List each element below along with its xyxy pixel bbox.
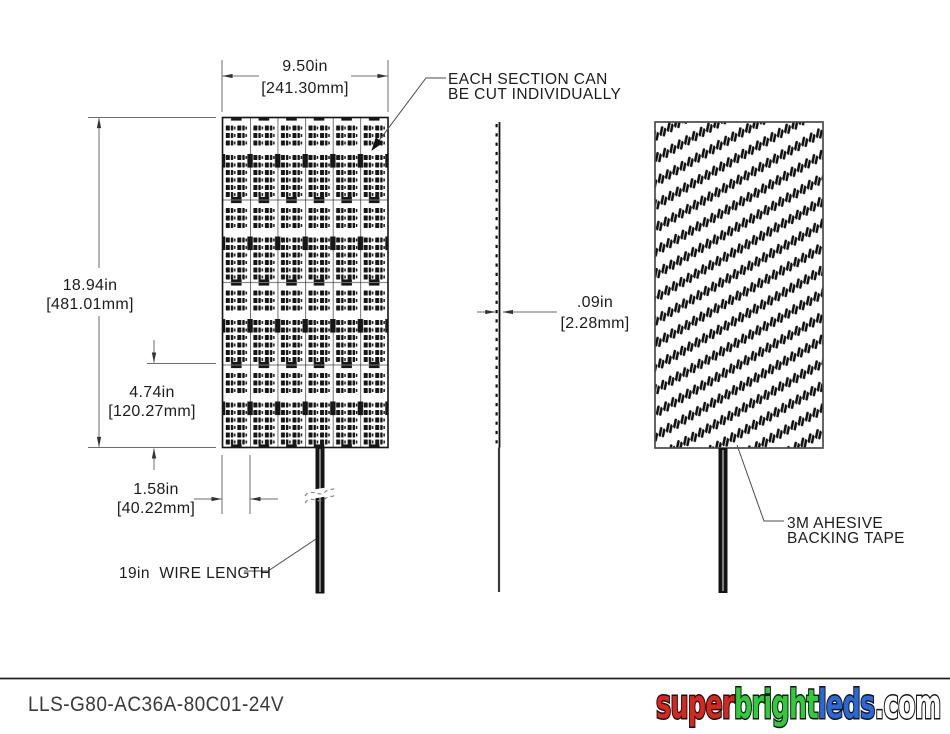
- logo-com: .com: [875, 681, 941, 728]
- brand-logo: superbrightleds.com: [656, 681, 941, 728]
- dim-width-in: 9.50in: [282, 58, 327, 75]
- logo-super: super: [656, 681, 735, 728]
- wire-length-label: 19in WIRE LENGTH: [119, 565, 271, 582]
- dim-section-width-mm: [40.22mm]: [117, 500, 195, 517]
- led-panel-front: [223, 118, 389, 448]
- dim-height-in: 18.94in: [63, 277, 118, 294]
- technical-drawing-svg: 9.50in [241.30mm] 18.94in [481.01mm] 4.7…: [0, 0, 950, 734]
- dim-width-mm: [241.30mm]: [261, 80, 348, 97]
- dim-thickness-mm: [2.28mm]: [560, 315, 629, 332]
- dim-section-height-in: 4.74in: [129, 384, 174, 401]
- dim-section-height-mm: [120.27mm]: [108, 403, 195, 420]
- logo-leds: leds: [818, 681, 875, 728]
- adhesive-tape-panel: [655, 122, 823, 448]
- logo-bright: bright: [734, 681, 819, 728]
- dim-height-mm: [481.01mm]: [46, 296, 133, 313]
- part-number: LLS-G80-AC36A-80C01-24V: [28, 693, 284, 716]
- dim-thickness-in: .09in: [577, 294, 613, 311]
- cut-note-line2: BE CUT INDIVIDUALLY: [448, 86, 621, 103]
- drawing-sheet: 9.50in [241.30mm] 18.94in [481.01mm] 4.7…: [0, 0, 950, 734]
- tape-note-line2: BACKING TAPE: [787, 530, 905, 547]
- dim-section-width-in: 1.58in: [133, 481, 178, 498]
